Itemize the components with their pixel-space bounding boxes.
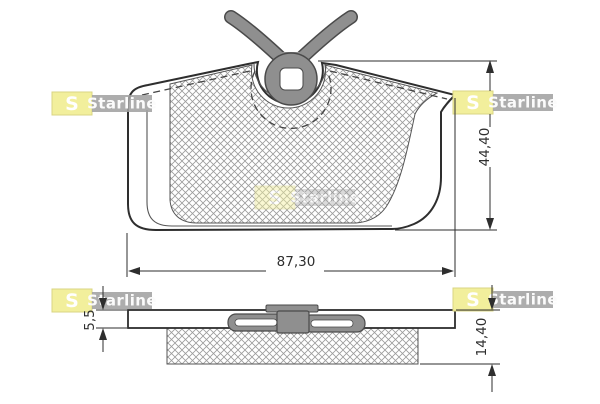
logo-name: Starline xyxy=(488,291,558,309)
dimension-backplate-thickness-label: 5,5 xyxy=(82,309,98,330)
logo-initial: S xyxy=(65,290,79,312)
logo-name: Starline xyxy=(87,95,157,113)
side-view xyxy=(128,305,455,364)
logo-name: Starline xyxy=(290,189,360,207)
logo-name: Starline xyxy=(87,292,157,310)
starline-watermark: S Starline xyxy=(255,186,360,209)
starline-watermark: S Starline xyxy=(52,92,157,115)
dimension-height-label: 44,40 xyxy=(477,128,493,167)
starline-watermark: S Starline xyxy=(453,91,558,114)
logo-initial: S xyxy=(268,187,282,209)
logo-initial: S xyxy=(65,93,79,115)
logo-initial: S xyxy=(466,92,480,114)
dimension-width-label: 87,30 xyxy=(277,254,316,270)
starline-watermark: S Starline xyxy=(453,288,558,311)
pin-hole xyxy=(280,68,303,90)
logo-name: Starline xyxy=(488,94,558,112)
dimension-total-thickness-label: 14,40 xyxy=(474,318,490,357)
logo-initial: S xyxy=(466,289,480,311)
brake-pad-diagram: S Starline S Starline S Starline S Starl… xyxy=(0,0,600,400)
